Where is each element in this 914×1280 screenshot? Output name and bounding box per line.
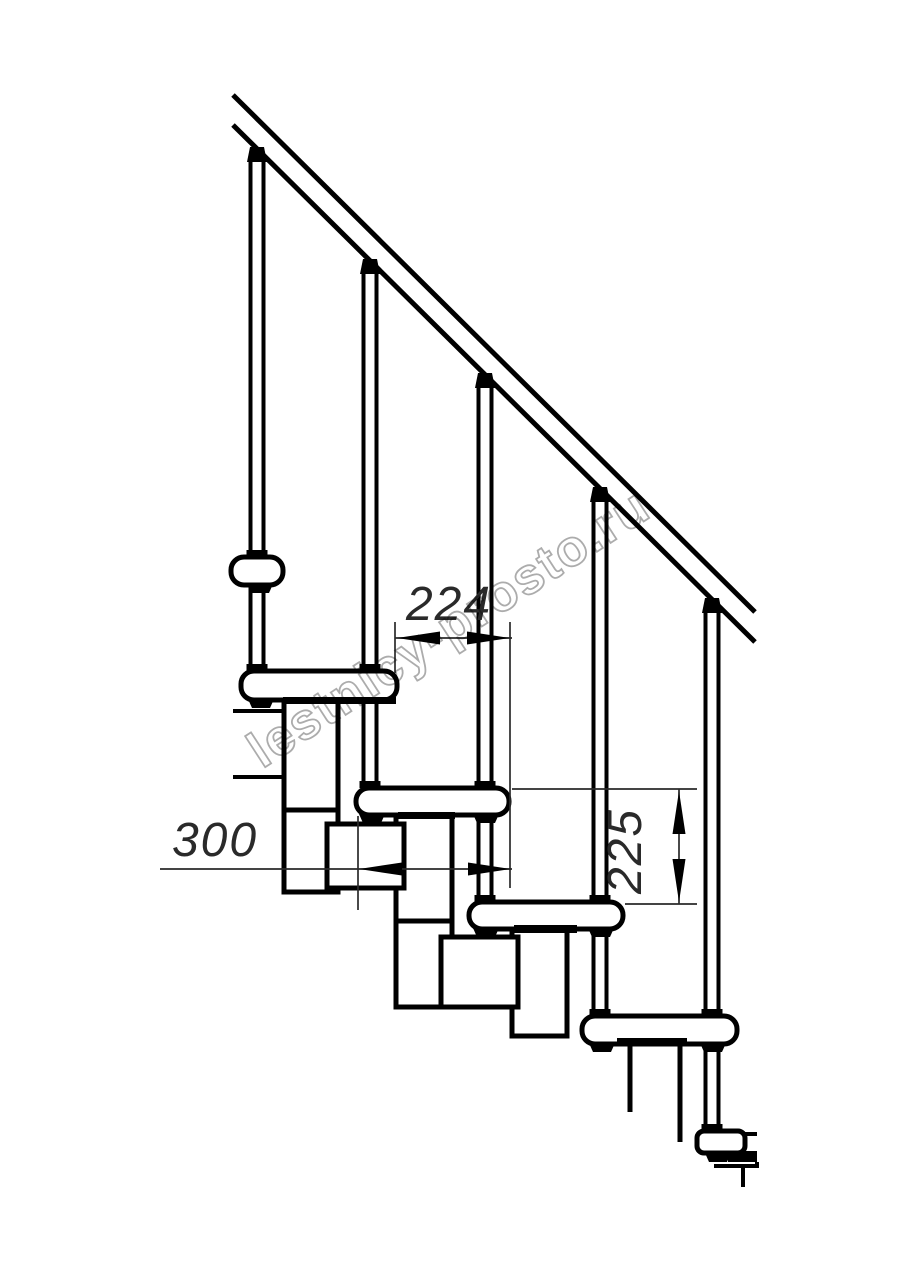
under-tread-bar bbox=[398, 812, 455, 819]
under-tread-bar bbox=[514, 925, 577, 933]
upper-bracket bbox=[231, 557, 283, 585]
staircase-drawing: 224 300 225 lestnicy-prosto.ru bbox=[0, 0, 914, 1280]
collar-icon bbox=[247, 664, 268, 671]
floor-mount bbox=[697, 1131, 757, 1187]
mount-nub-icon bbox=[359, 814, 385, 823]
floor-break-lines bbox=[714, 1162, 757, 1187]
collar-icon bbox=[247, 550, 268, 557]
foot-plate bbox=[697, 1131, 745, 1153]
module-box-c bbox=[441, 937, 518, 1007]
dimension-225-label: 225 bbox=[599, 808, 652, 895]
mount-nub-icon bbox=[589, 1043, 615, 1052]
arrow-up-icon bbox=[673, 791, 686, 834]
tread-3 bbox=[469, 902, 623, 929]
tread-2 bbox=[356, 788, 509, 815]
mount-nub-icon bbox=[473, 928, 499, 937]
collar-icon bbox=[590, 1009, 611, 1016]
floor-bar bbox=[728, 1151, 757, 1162]
mount-nub-icon bbox=[588, 928, 614, 937]
collar-icon bbox=[360, 781, 381, 788]
handrail bbox=[233, 95, 755, 642]
handrail-top-line bbox=[233, 95, 755, 612]
baluster-3 bbox=[479, 386, 492, 903]
collar-icon bbox=[475, 781, 496, 788]
mount-nub-icon bbox=[247, 584, 273, 593]
baluster-4 bbox=[594, 500, 607, 1018]
collar-icon bbox=[590, 895, 611, 902]
module-tube-d-partial bbox=[630, 1046, 680, 1142]
baluster-5 bbox=[706, 611, 719, 1132]
mount-nub-icon bbox=[248, 699, 274, 708]
mount-nub-icon bbox=[705, 1153, 731, 1162]
dimension-300-label: 300 bbox=[172, 814, 258, 867]
under-tread-bar bbox=[617, 1038, 687, 1046]
mount-nub-icon bbox=[700, 1043, 726, 1052]
arrow-down-icon bbox=[673, 859, 686, 902]
collar-icon bbox=[475, 895, 496, 902]
mount-nub-icon bbox=[473, 814, 499, 823]
baluster-1 bbox=[251, 160, 264, 672]
collar-icon bbox=[702, 1009, 723, 1016]
module-box-b bbox=[327, 824, 404, 888]
drawing-canvas: 224 300 225 lestnicy-prosto.ru bbox=[0, 0, 914, 1280]
